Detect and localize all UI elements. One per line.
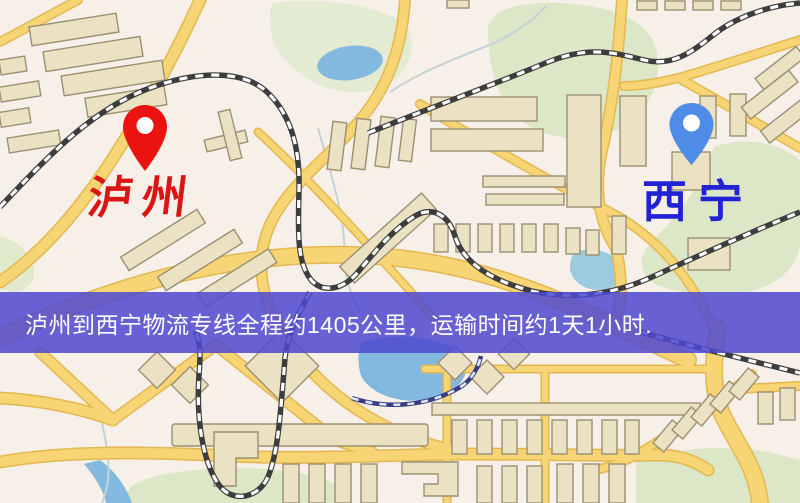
origin-label[interactable]: 泸州 [85, 176, 199, 221]
destination-pin-icon[interactable] [668, 102, 715, 166]
route-info-text: 泸州到西宁物流专线全程约1405公里，运输时间约1天1小时. [25, 306, 652, 340]
route-info-banner: 泸州到西宁物流专线全程约1405公里，运输时间约1天1小时. [0, 292, 800, 353]
map-screenshot: 泸州 西宁 泸州到西宁物流专线全程约1405公里，运输时间约1天1小时. [0, 0, 800, 503]
map-canvas[interactable] [0, 0, 800, 503]
origin-pin-icon[interactable] [122, 104, 168, 172]
destination-label[interactable]: 西宁 [642, 180, 754, 225]
